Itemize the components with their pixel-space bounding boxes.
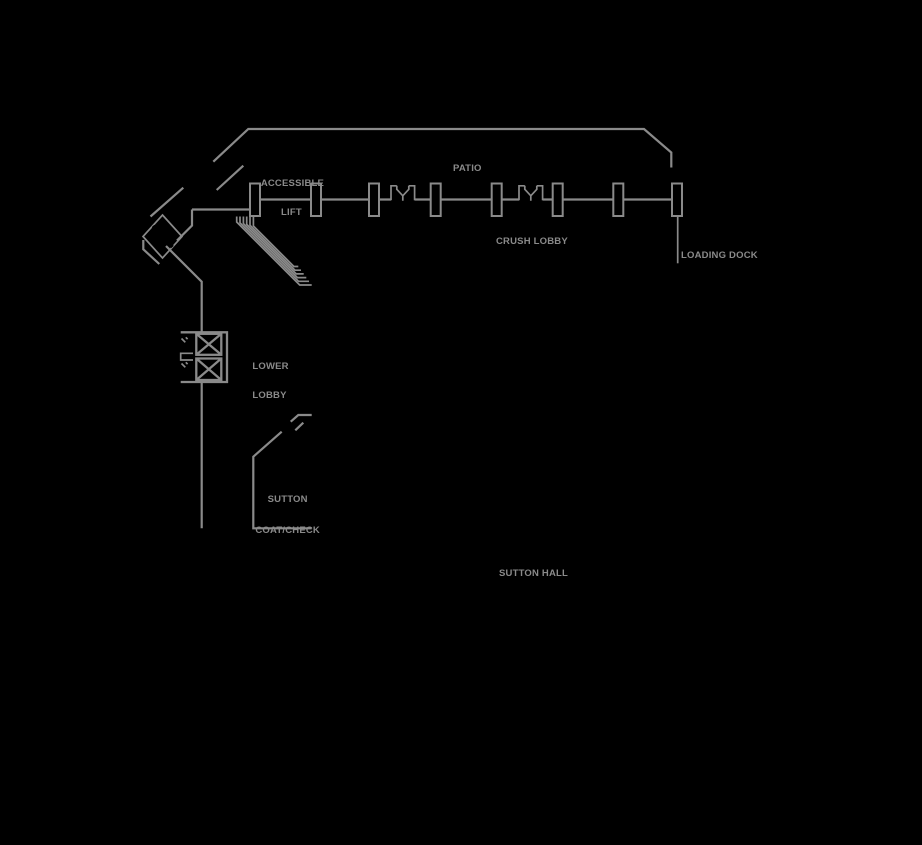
label-loading-dock: LOADING DOCK [681, 249, 758, 263]
pillar [492, 184, 502, 217]
escalator [143, 188, 192, 264]
label-line: LOWER [252, 361, 288, 372]
pillar [431, 184, 441, 217]
elevator-block [181, 332, 227, 382]
elevator-door-mark [182, 337, 188, 342]
label-crush-lobby: CRUSH LOBBY [496, 235, 568, 249]
floor-plan-drawing [0, 0, 922, 845]
elevator-call-niche [181, 353, 193, 360]
label-lower-lobby: LOWER LOBBY [241, 346, 289, 418]
label-line: SUTTON [268, 494, 308, 505]
label-line: ACCESSIBLE [261, 178, 324, 189]
floor-plan: ACCESSIBLE LIFT PATIO CRUSH LOBBY LOADIN… [0, 0, 922, 845]
pillar [369, 184, 379, 217]
label-line: LIFT [281, 207, 302, 218]
label-accessible-lift: ACCESSIBLE LIFT [250, 163, 322, 235]
pillar [672, 184, 682, 217]
pillar [553, 184, 563, 217]
label-line: LOBBY [252, 390, 286, 401]
pillar [613, 184, 623, 217]
label-line: COAT/CHECK [255, 525, 320, 536]
double-door-symbol [519, 185, 543, 201]
label-sutton-hall: SUTTON HALL [499, 567, 568, 581]
double-door-symbol [391, 185, 415, 201]
label-patio: PATIO [453, 162, 482, 176]
elevator-door-mark [182, 362, 188, 367]
label-sutton-coatcheck: SUTTON COAT/CHECK [242, 476, 322, 554]
